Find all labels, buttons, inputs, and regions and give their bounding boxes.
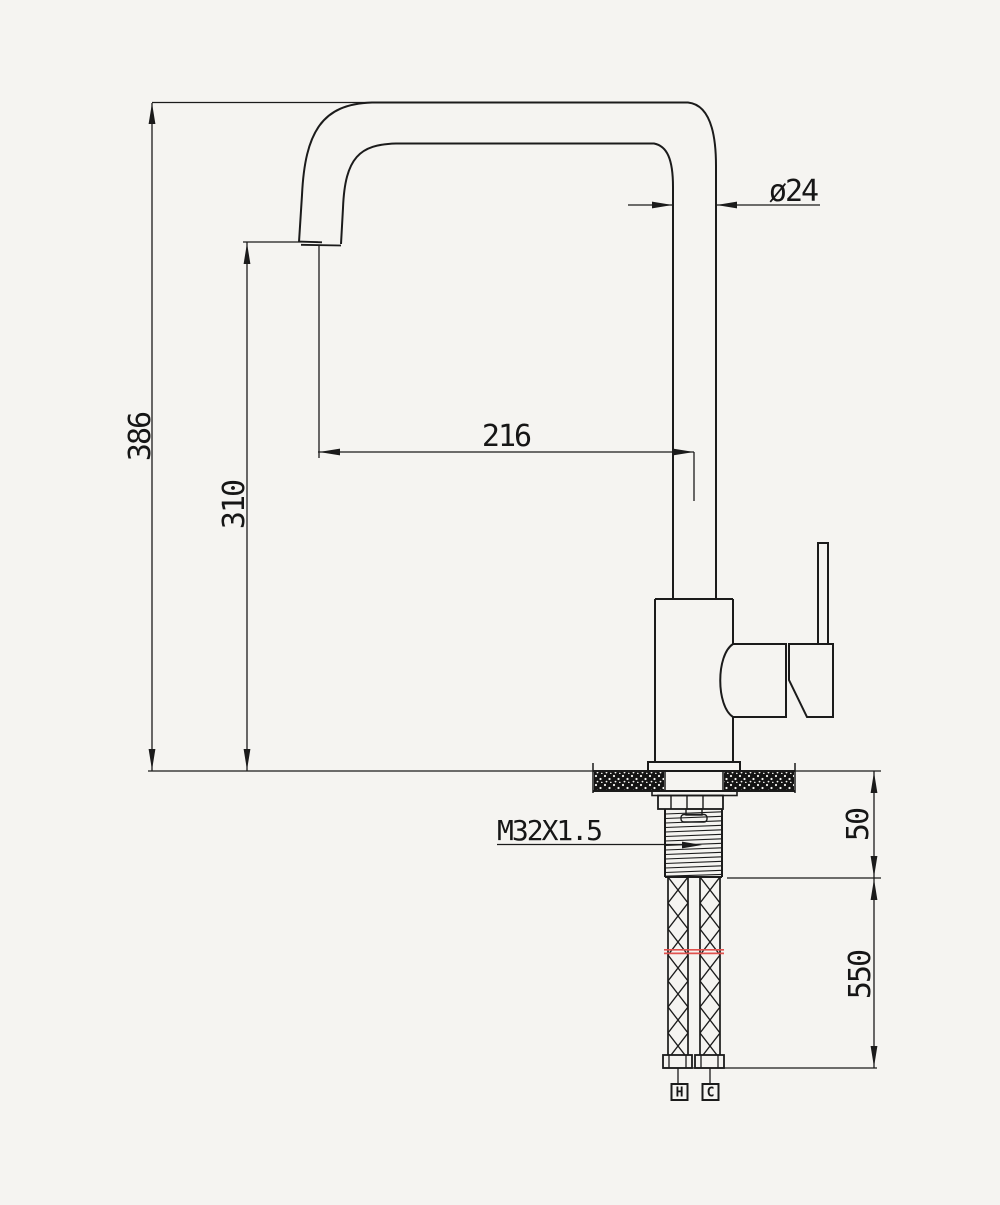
dim-label-overall-height: 386 xyxy=(123,412,158,461)
arrow-thread-leader xyxy=(682,842,702,849)
faucet-spout-outline xyxy=(299,103,716,600)
counter-hatch-left xyxy=(594,772,664,790)
spout-inner-line xyxy=(341,144,673,600)
arrow-dia24-left xyxy=(652,202,673,209)
arrow-386-top xyxy=(149,103,156,124)
base-flange xyxy=(648,762,740,771)
handle-lever-rod xyxy=(818,543,828,644)
locknut-facets xyxy=(671,796,703,810)
arrow-550-bottom xyxy=(871,1046,878,1067)
hot-fitting-facets xyxy=(669,1055,686,1068)
arrow-310-bottom xyxy=(244,749,251,770)
hot-hose-braid xyxy=(668,877,688,1055)
arrow-386-bottom xyxy=(149,749,156,770)
arrow-310-top xyxy=(244,243,251,264)
hose-label-leaders xyxy=(678,1068,710,1084)
cold-fitting-facets xyxy=(701,1055,718,1068)
arrow-216-right xyxy=(673,449,694,456)
technical-drawing-page: 386 310 216 ø24 M32X1.5 50 550 H C xyxy=(0,0,1000,1200)
arrow-dia24-right xyxy=(717,202,738,209)
dimension-arrowheads xyxy=(149,103,878,1067)
dimension-linework xyxy=(148,103,881,1085)
hot-hose-fitting xyxy=(663,1055,692,1068)
handle-body xyxy=(789,644,833,717)
faucet-body xyxy=(648,543,833,771)
dim-label-spout-height: 310 xyxy=(217,480,252,529)
countertop xyxy=(593,763,795,793)
cold-hose-fitting xyxy=(695,1055,724,1068)
arrow-50-bottom xyxy=(871,856,878,877)
arrow-50-top xyxy=(871,772,878,793)
cartridge-housing xyxy=(720,644,786,717)
cold-hose-braid xyxy=(700,877,720,1055)
hot-label: H xyxy=(676,1086,684,1101)
spout-outer-line xyxy=(299,103,716,600)
label-mount-thread: M32X1.5 xyxy=(497,814,601,847)
counter-hole-edges xyxy=(665,771,723,791)
supply-hoses xyxy=(663,877,724,1068)
cold-label: C xyxy=(707,1086,715,1101)
faucet-technical-drawing: 386 310 216 ø24 M32X1.5 50 550 H C xyxy=(0,0,1000,1200)
dim-label-pipe-diameter: ø24 xyxy=(769,174,818,209)
dim-label-hose-length: 550 xyxy=(843,950,878,999)
arrow-216-left xyxy=(319,449,340,456)
arrow-550-top xyxy=(871,879,878,900)
hot-cold-labels: H C xyxy=(672,1084,719,1101)
counter-hatch-right xyxy=(724,772,794,790)
dim-label-spout-reach: 216 xyxy=(482,419,531,454)
mounting-hardware xyxy=(652,791,737,877)
body-block xyxy=(655,599,733,762)
dim-label-deck-section: 50 xyxy=(841,808,876,841)
mount-locknut xyxy=(658,796,723,810)
